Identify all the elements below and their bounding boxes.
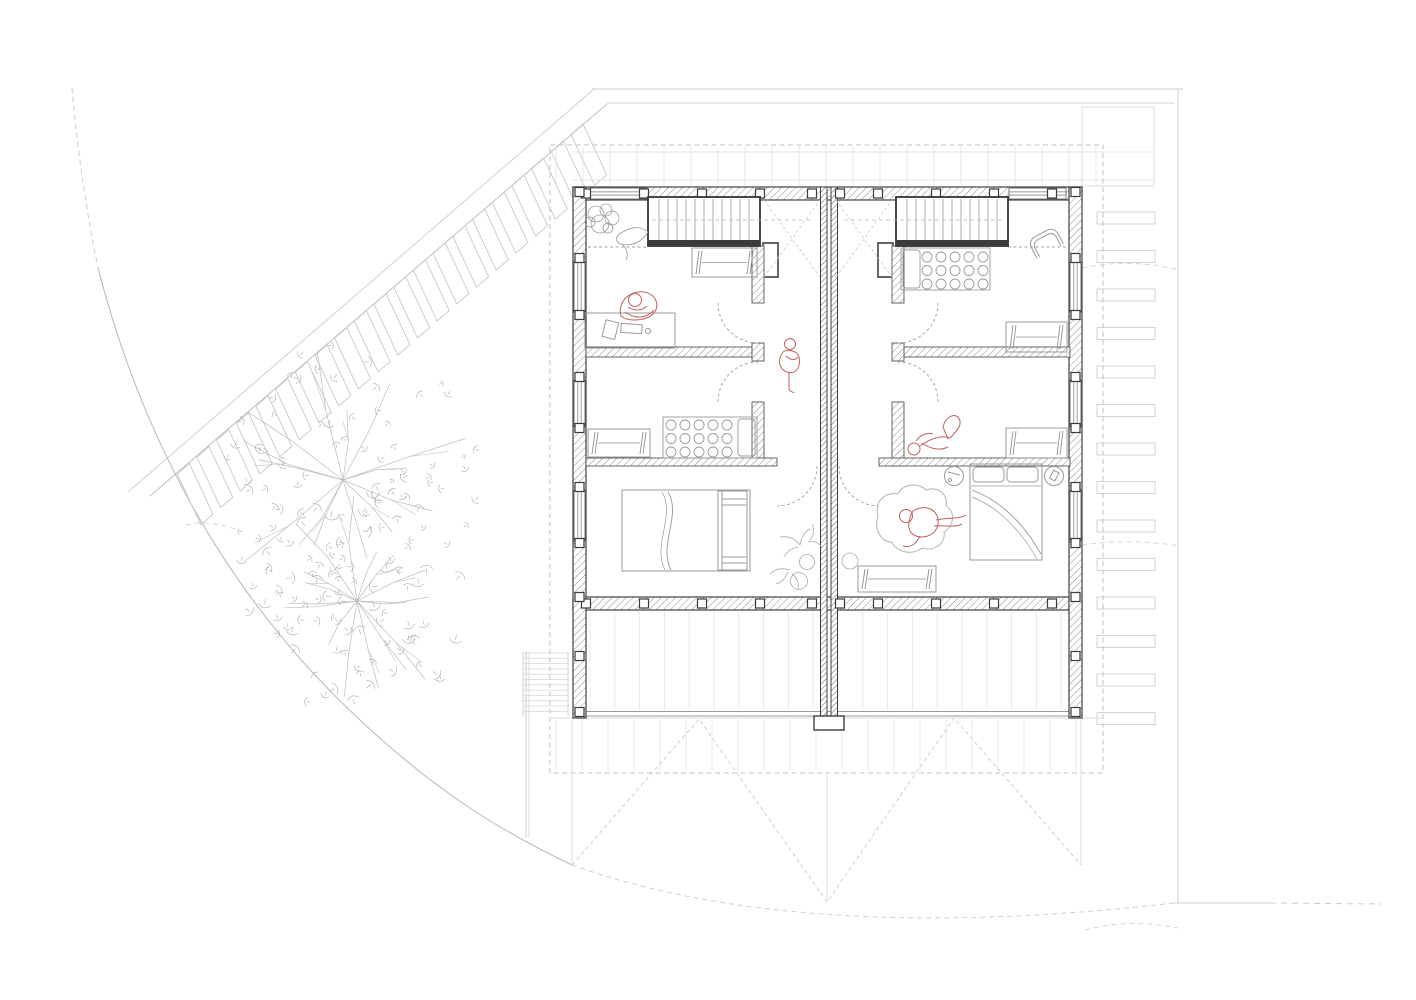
dot bbox=[708, 420, 718, 430]
interior-wall bbox=[892, 402, 904, 466]
tree-leaf bbox=[363, 678, 377, 692]
terrace-step bbox=[1097, 405, 1155, 417]
contour-line bbox=[1082, 542, 1180, 546]
tree-branch bbox=[391, 500, 415, 515]
dot bbox=[666, 420, 676, 430]
tree-leaf bbox=[299, 600, 309, 610]
tree-leaf bbox=[386, 664, 398, 678]
window bbox=[574, 490, 585, 541]
site-curve bbox=[98, 268, 572, 865]
tree-leaf bbox=[275, 591, 284, 598]
party-wall-end-cap bbox=[814, 716, 844, 730]
double-bed-right bbox=[970, 464, 1042, 560]
wall-post bbox=[990, 599, 999, 608]
tree-leaf bbox=[313, 594, 322, 604]
tree-leaf bbox=[340, 436, 347, 443]
tree-leaf bbox=[260, 484, 269, 494]
tree-leaf bbox=[379, 523, 385, 531]
tree-leaf bbox=[443, 388, 455, 399]
tree-leaf bbox=[402, 619, 415, 630]
tree-leaf bbox=[309, 501, 323, 515]
armchair bbox=[1028, 226, 1064, 258]
parking-stall bbox=[571, 124, 607, 185]
parking-stall bbox=[177, 464, 213, 525]
tree-leaf bbox=[328, 371, 341, 383]
tree-leaf bbox=[348, 412, 358, 423]
parking-stalls-row bbox=[177, 124, 606, 525]
wall-post bbox=[932, 599, 941, 608]
contour-line bbox=[1085, 923, 1178, 930]
tree-leaf bbox=[460, 454, 466, 461]
parking-stall bbox=[413, 260, 449, 321]
interior-wall bbox=[752, 246, 764, 303]
party-wall-left-leaf bbox=[821, 187, 828, 717]
tree-leaf bbox=[241, 477, 252, 486]
window bbox=[1070, 262, 1081, 312]
wall-post bbox=[1071, 311, 1080, 320]
tree-branch bbox=[357, 597, 429, 603]
terrace-step bbox=[1097, 289, 1155, 301]
dot bbox=[964, 279, 974, 289]
terrace-step bbox=[1097, 713, 1155, 725]
tree-leaf bbox=[472, 445, 481, 455]
dot bbox=[964, 252, 974, 262]
dot bbox=[680, 447, 690, 457]
tree-leaf bbox=[418, 523, 427, 532]
wall-post bbox=[698, 599, 707, 608]
tree-leaf bbox=[383, 420, 392, 428]
tree-leaf bbox=[292, 372, 303, 384]
tree-leaf bbox=[400, 492, 411, 504]
tree-leaf bbox=[448, 633, 463, 645]
tree-branch bbox=[394, 578, 416, 583]
tree-leaf bbox=[262, 562, 273, 574]
wall-post bbox=[756, 599, 765, 608]
tree-leaf bbox=[332, 442, 340, 448]
tree-leaf bbox=[452, 570, 467, 584]
tree-leaf bbox=[293, 480, 303, 488]
tree-branch bbox=[343, 410, 348, 480]
wall-post bbox=[874, 189, 883, 198]
wall-post bbox=[575, 424, 584, 433]
lower-roof-outline bbox=[1082, 107, 1154, 186]
dot bbox=[722, 434, 732, 444]
terrace-step bbox=[1097, 597, 1155, 609]
tree-branch bbox=[314, 480, 343, 546]
person-standing-figure bbox=[780, 339, 800, 394]
parking-stall bbox=[374, 294, 410, 355]
tree-leaf bbox=[377, 454, 386, 464]
tree-leaf bbox=[370, 488, 385, 503]
wall-post bbox=[1048, 599, 1057, 608]
wall-post bbox=[575, 652, 584, 661]
tree-leaf bbox=[335, 536, 345, 549]
door-arc bbox=[718, 303, 758, 343]
wall-post bbox=[575, 483, 584, 492]
tree-leaf bbox=[332, 646, 342, 654]
parking-stall bbox=[453, 226, 489, 287]
tree-leaf bbox=[398, 471, 410, 484]
tree-branch bbox=[357, 552, 377, 601]
parking-stall bbox=[433, 243, 469, 304]
wall-post bbox=[1071, 373, 1080, 382]
tree-leaf bbox=[349, 577, 357, 586]
dot bbox=[666, 447, 676, 457]
parking-stall bbox=[472, 209, 508, 270]
door-arc bbox=[777, 466, 817, 506]
side-table-right bbox=[1045, 467, 1064, 486]
book bbox=[602, 320, 619, 340]
dot bbox=[964, 266, 974, 276]
dot bbox=[708, 434, 718, 444]
parking-stall bbox=[532, 158, 568, 219]
wall-post bbox=[1071, 708, 1080, 717]
interior-walls bbox=[586, 246, 1070, 466]
wall-post bbox=[1071, 254, 1080, 263]
door-arc bbox=[898, 362, 938, 402]
tree-leaf bbox=[269, 502, 280, 513]
tree-leaf bbox=[402, 542, 412, 553]
dot bbox=[936, 279, 946, 289]
tree-leaf bbox=[462, 521, 470, 529]
dot bbox=[722, 447, 732, 457]
exterior-stair-treads bbox=[523, 653, 568, 711]
contour-line bbox=[1082, 263, 1180, 270]
dot bbox=[694, 420, 704, 430]
tree-leaf bbox=[338, 596, 346, 607]
tree-leaf bbox=[395, 645, 406, 656]
tree-leaf bbox=[398, 466, 408, 476]
tree-leaf bbox=[375, 406, 382, 415]
terrace-step bbox=[1097, 212, 1155, 224]
parking-stall bbox=[394, 277, 430, 338]
contour-line bbox=[186, 523, 240, 531]
floor-plan-canvas bbox=[0, 0, 1416, 1000]
parking-stall bbox=[236, 413, 272, 474]
tree-branch bbox=[357, 601, 406, 670]
tree-leaf bbox=[387, 487, 398, 498]
tree-branch bbox=[357, 555, 394, 601]
tree-leaf bbox=[296, 349, 305, 359]
parking-stall bbox=[295, 362, 331, 423]
tree-leaf bbox=[304, 697, 311, 707]
site-trees bbox=[223, 341, 482, 706]
pillow bbox=[903, 250, 920, 288]
tree-leaf bbox=[236, 556, 247, 565]
dot bbox=[950, 279, 960, 289]
tree-leaf bbox=[267, 522, 278, 533]
tree-leaf bbox=[276, 505, 283, 515]
tree-leaf bbox=[381, 609, 388, 617]
tree-leaf bbox=[287, 643, 302, 658]
tree-leaf bbox=[297, 615, 305, 625]
tree-leaf bbox=[340, 649, 349, 657]
tree-leaf bbox=[438, 484, 446, 494]
dot bbox=[922, 279, 932, 289]
person-at-desk-figure bbox=[620, 292, 657, 320]
tree-leaf bbox=[320, 689, 331, 699]
wall-post bbox=[1071, 539, 1080, 548]
floor-plants bbox=[770, 524, 858, 590]
wall-post bbox=[1048, 189, 1057, 198]
tree-branch bbox=[357, 601, 379, 689]
dot bbox=[722, 420, 732, 430]
terraced-steps-strip bbox=[1097, 212, 1155, 725]
terrace-step bbox=[1097, 251, 1155, 263]
tree-branch bbox=[338, 514, 349, 544]
tree-leaf bbox=[290, 594, 299, 603]
tree-leaf bbox=[324, 420, 334, 427]
wall-post bbox=[874, 599, 883, 608]
wardrobe bbox=[1006, 428, 1067, 458]
tree-leaf bbox=[238, 528, 243, 535]
tree-leaf bbox=[420, 565, 433, 574]
tree-leaf bbox=[314, 561, 325, 571]
tree-leaf bbox=[324, 541, 334, 552]
tree-leaf bbox=[460, 464, 470, 472]
tree-leaf bbox=[412, 578, 425, 587]
tree-leaf bbox=[271, 410, 279, 418]
dot bbox=[936, 266, 946, 276]
door-arc bbox=[718, 362, 758, 402]
tree-branch bbox=[343, 480, 367, 558]
wall-post bbox=[575, 539, 584, 548]
interior-wall bbox=[892, 246, 904, 303]
road-kerb-line-outer bbox=[128, 90, 593, 492]
wall-post bbox=[575, 311, 584, 320]
tree-leaf bbox=[382, 637, 392, 646]
parking-stall bbox=[512, 175, 548, 236]
tree-branch bbox=[343, 468, 406, 480]
tree-leaf bbox=[324, 510, 338, 521]
double-bed-left bbox=[622, 490, 750, 571]
wall-post bbox=[836, 599, 845, 608]
door-arc bbox=[898, 303, 938, 343]
wall-post bbox=[808, 189, 817, 198]
wall-post bbox=[575, 188, 584, 197]
service-shaft-right bbox=[878, 243, 893, 277]
tree-leaf bbox=[223, 453, 232, 461]
dot bbox=[978, 252, 988, 262]
tree-leaf bbox=[392, 516, 402, 523]
dot bbox=[950, 266, 960, 276]
desk bbox=[585, 313, 675, 348]
person-on-bed-figure bbox=[908, 416, 960, 455]
tree-leaf bbox=[403, 583, 413, 590]
tree-leaf bbox=[329, 550, 337, 559]
tree-branch bbox=[299, 480, 343, 545]
tree-branch bbox=[343, 480, 392, 532]
single-bed-dotted bbox=[901, 248, 990, 290]
parking-stall bbox=[354, 311, 390, 372]
tree-branch bbox=[305, 583, 357, 601]
parking-stall bbox=[492, 192, 528, 253]
tree-leaf bbox=[296, 507, 307, 519]
tree-leaf bbox=[257, 597, 272, 609]
tree-branch bbox=[372, 507, 391, 518]
window bbox=[1070, 380, 1081, 427]
tree-leaf bbox=[370, 482, 382, 493]
stair-wall bbox=[896, 240, 1008, 246]
dot bbox=[708, 447, 718, 457]
wall-post bbox=[1071, 188, 1080, 197]
dot bbox=[978, 279, 988, 289]
parking-stall bbox=[276, 379, 312, 440]
wardrobe bbox=[588, 429, 650, 457]
tree-leaf bbox=[438, 380, 444, 387]
window bbox=[574, 380, 585, 427]
interior-wall bbox=[879, 458, 1070, 466]
terrace-step bbox=[1097, 559, 1155, 571]
tree-leaf bbox=[283, 537, 295, 548]
tree-leaf bbox=[427, 479, 433, 487]
person-in-beanbag-figure bbox=[900, 508, 967, 547]
mouse bbox=[645, 328, 650, 333]
window bbox=[1070, 490, 1081, 541]
tree-leaf bbox=[429, 667, 443, 681]
dot bbox=[978, 266, 988, 276]
terrace-step bbox=[1097, 520, 1155, 532]
tree-branch bbox=[410, 452, 448, 457]
tree-leaf bbox=[286, 572, 294, 584]
dot bbox=[922, 252, 932, 262]
dot bbox=[694, 447, 704, 457]
wall-post bbox=[1071, 593, 1080, 602]
tree-leaf bbox=[283, 623, 293, 630]
tree-branch bbox=[312, 515, 325, 532]
site-boundary-bottom-dashed bbox=[1270, 903, 1382, 904]
tree-leaf bbox=[230, 439, 242, 449]
wall-post bbox=[575, 254, 584, 263]
window bbox=[574, 262, 585, 312]
terrace-step bbox=[1097, 636, 1155, 648]
interior-wall bbox=[586, 458, 777, 466]
tree-leaf bbox=[389, 443, 399, 452]
tree-branch bbox=[368, 649, 380, 673]
tree-leaf bbox=[260, 448, 269, 458]
stair-wall bbox=[648, 240, 760, 246]
tree-branch bbox=[259, 460, 343, 480]
tree-leaf bbox=[242, 604, 256, 618]
party-wall-right-leaf bbox=[831, 187, 838, 717]
tree-leaf bbox=[328, 570, 335, 578]
tree-leaf bbox=[356, 504, 370, 518]
floor-plan-drawing bbox=[0, 0, 1416, 1000]
interior-wall bbox=[892, 343, 904, 361]
tree-leaf bbox=[408, 536, 414, 544]
parking-stall bbox=[197, 447, 233, 508]
terrace-step bbox=[1097, 328, 1155, 340]
tree bbox=[242, 487, 467, 706]
dot bbox=[694, 434, 704, 444]
wall-post bbox=[640, 599, 649, 608]
tree-leaf bbox=[334, 576, 342, 582]
tree-leaf bbox=[346, 694, 360, 705]
tree-branch bbox=[329, 601, 357, 645]
tree-leaf bbox=[302, 471, 309, 480]
tree-leaf bbox=[305, 555, 313, 564]
tree-leaf bbox=[336, 539, 344, 549]
tree-leaf bbox=[366, 526, 374, 534]
tree-leaf bbox=[415, 661, 424, 670]
dot bbox=[950, 252, 960, 262]
tree-branch bbox=[344, 601, 357, 696]
tree-leaf bbox=[362, 525, 372, 538]
tree-leaf bbox=[418, 619, 430, 630]
interior-wall bbox=[752, 343, 764, 361]
wall-post bbox=[1071, 652, 1080, 661]
tree-leaf bbox=[428, 461, 437, 470]
terrace-step bbox=[1097, 443, 1155, 455]
window bbox=[590, 188, 647, 199]
tree-leaf bbox=[388, 478, 395, 485]
wall-post bbox=[1071, 483, 1080, 492]
keyboard bbox=[621, 323, 643, 333]
tree-leaf bbox=[261, 545, 275, 559]
wall-post bbox=[1071, 424, 1080, 433]
wardrobe bbox=[858, 566, 936, 592]
window bbox=[1009, 188, 1066, 199]
tree-leaf bbox=[265, 565, 274, 576]
tree-leaf bbox=[415, 389, 426, 400]
terrace-step bbox=[1097, 482, 1155, 494]
tree-leaf bbox=[392, 566, 405, 576]
tree-branch bbox=[312, 373, 325, 410]
site-curve-bottom-dashed bbox=[572, 865, 1174, 918]
parking-stall bbox=[335, 328, 371, 389]
tree-leaf bbox=[295, 515, 310, 530]
tree-branch bbox=[343, 480, 433, 511]
staircase bbox=[844, 197, 1008, 246]
dot bbox=[680, 434, 690, 444]
tree-leaf bbox=[248, 582, 257, 590]
tree-leaf bbox=[272, 613, 282, 621]
tree-leaf bbox=[373, 497, 383, 509]
side-table-left bbox=[945, 467, 964, 486]
tree-branch bbox=[255, 526, 290, 543]
dot bbox=[922, 266, 932, 276]
dot bbox=[666, 434, 676, 444]
site-curve-dashed bbox=[72, 88, 98, 268]
tree-leaf bbox=[356, 670, 365, 677]
tree-leaf bbox=[442, 539, 451, 549]
tree-leaf bbox=[398, 493, 407, 501]
tree-leaf bbox=[271, 583, 284, 597]
staircase bbox=[648, 197, 812, 246]
dot bbox=[680, 420, 690, 430]
tree-leaf bbox=[322, 590, 331, 602]
tree-leaf bbox=[312, 615, 321, 626]
terrace-step bbox=[1097, 674, 1155, 686]
single-bed-dotted bbox=[663, 417, 757, 458]
tree-leaf bbox=[276, 536, 284, 543]
tree-leaf bbox=[370, 382, 381, 394]
potted-plant bbox=[585, 204, 648, 260]
service-shaft-left bbox=[763, 243, 778, 277]
tree-leaf bbox=[470, 494, 481, 506]
wall-post bbox=[836, 189, 845, 198]
wall-post bbox=[575, 593, 584, 602]
tree-branch bbox=[357, 570, 425, 601]
terrace-step bbox=[1097, 366, 1155, 378]
tree-branch bbox=[244, 480, 343, 562]
tree-leaf bbox=[316, 420, 326, 429]
tree-leaf bbox=[423, 472, 432, 482]
tree-branch bbox=[357, 601, 425, 679]
wall-post bbox=[808, 599, 817, 608]
stairs bbox=[648, 197, 1008, 246]
tree-branch bbox=[343, 383, 390, 480]
